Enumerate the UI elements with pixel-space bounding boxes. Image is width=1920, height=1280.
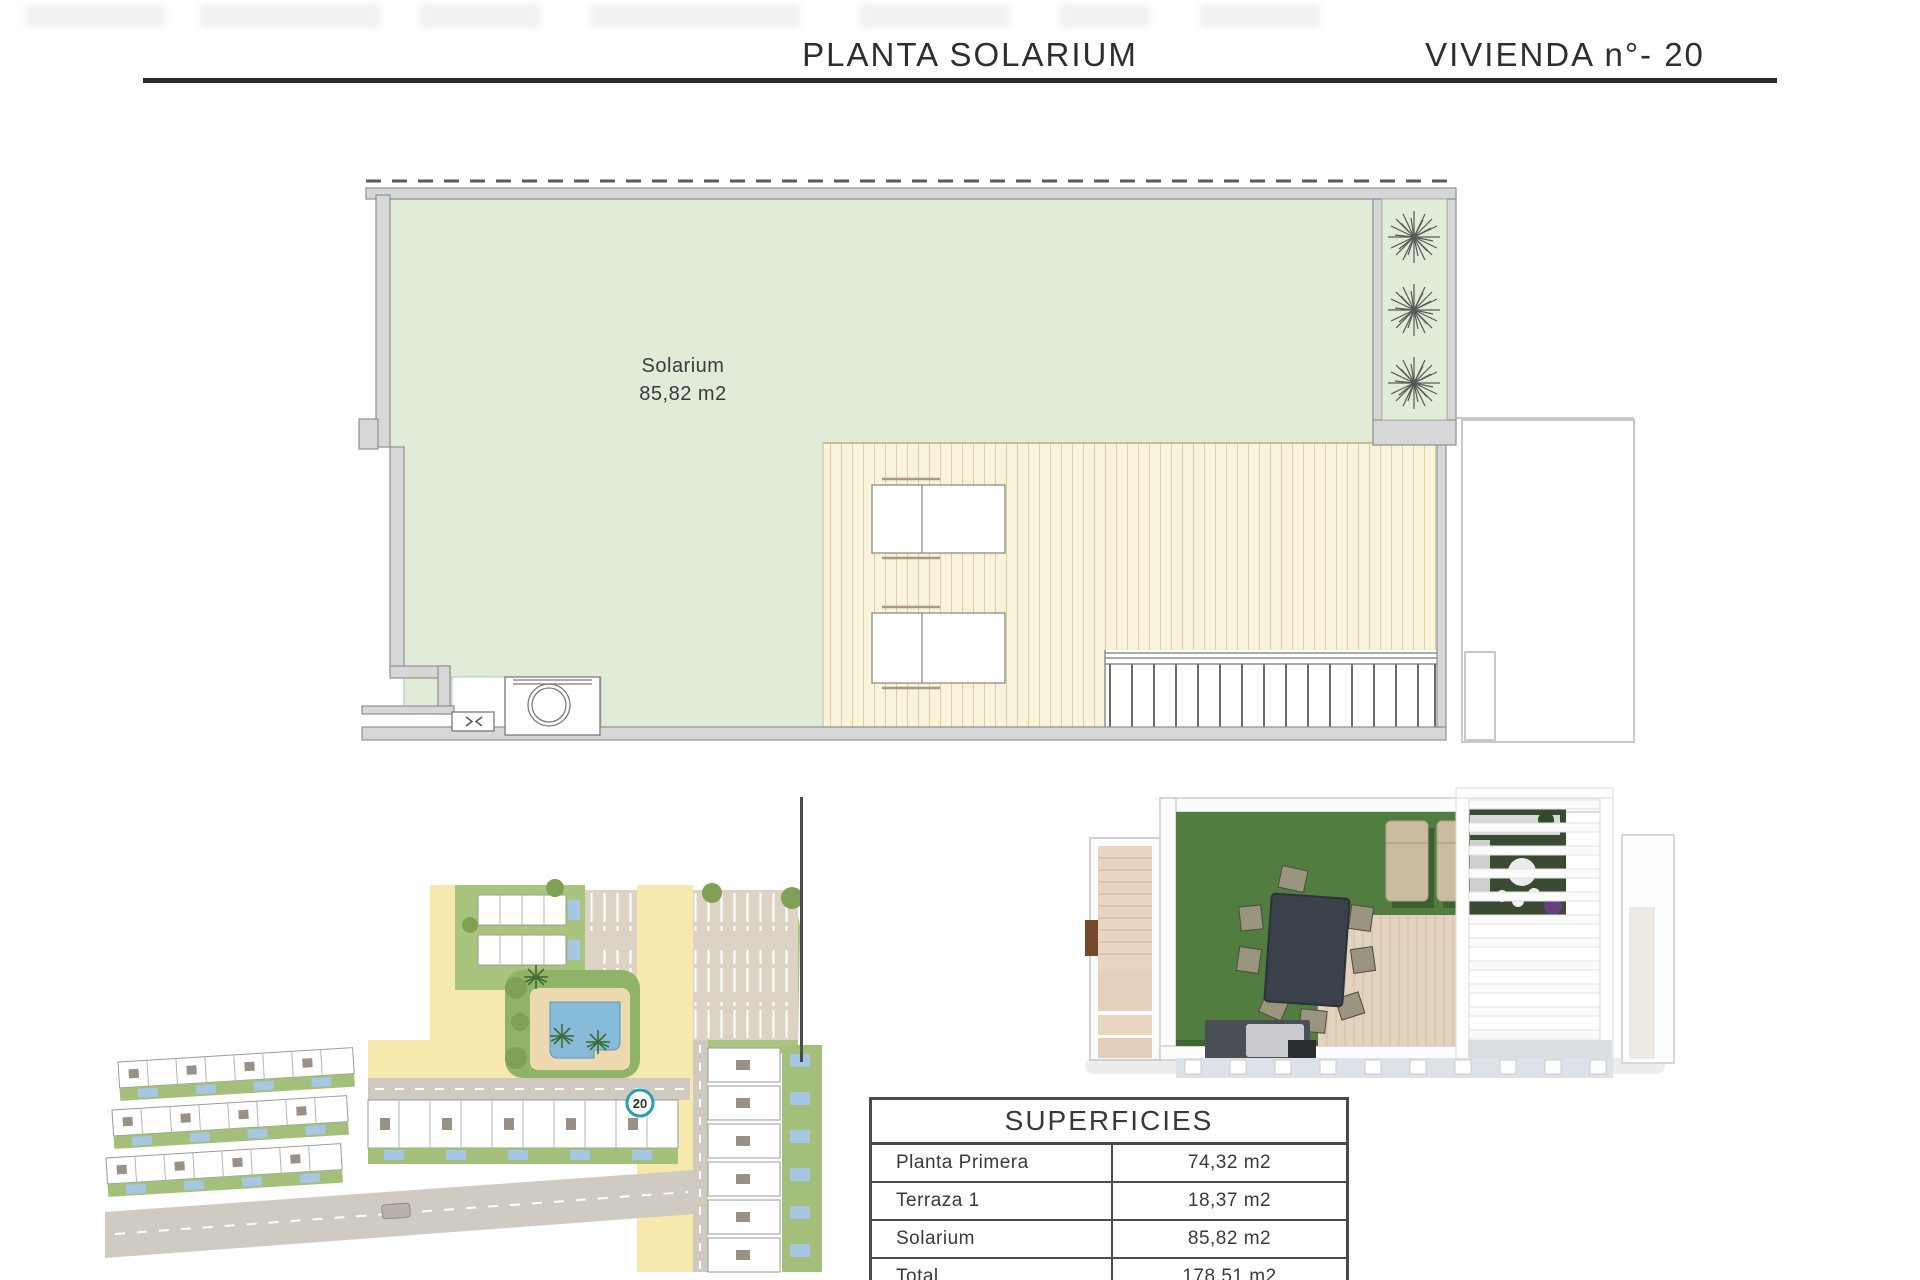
table-row: Total 178,51 m2 [872, 1259, 1346, 1280]
planter-left-wall [1373, 199, 1382, 445]
sun-lounger [872, 613, 1005, 683]
section-divider [800, 797, 803, 1062]
right-annex [1622, 835, 1674, 1063]
pergola [1456, 788, 1613, 1064]
stairs-railing [1105, 650, 1437, 727]
table-row: Solarium 85,82 m2 [872, 1221, 1346, 1259]
plan-sheet: PLANTA SOLARIUM VIVIENDA n°- 20 [0, 0, 1920, 1280]
left-house-cluster [106, 1048, 355, 1197]
tree-icon [702, 883, 722, 903]
solarium-floor-plan: Solarium 85,82 m2 [340, 165, 1670, 765]
washing-unit [505, 677, 600, 735]
stairs-annex [1085, 838, 1162, 1060]
table-row: Terraza 1 18,37 m2 [872, 1183, 1346, 1221]
deck-right-wall [1437, 443, 1446, 727]
planter [1382, 199, 1447, 420]
unit-20-badge: 20 [627, 1090, 653, 1116]
watermark-smudge [1060, 4, 1150, 28]
table-row: Planta Primera 74,32 m2 [872, 1145, 1346, 1183]
vent-unit [452, 712, 494, 731]
row-value: 18,37 m2 [1113, 1183, 1346, 1219]
pool [550, 1002, 620, 1058]
row-label: Solarium [872, 1221, 1113, 1257]
room-area-label: 85,82 m2 [639, 383, 726, 405]
watermark-smudge [25, 4, 165, 28]
left-wall-upper [376, 195, 390, 447]
row-label: Total [872, 1259, 1113, 1280]
header-rule [143, 78, 1777, 83]
tree-icon [546, 879, 564, 897]
watermark-smudge [200, 4, 380, 28]
planter-right-wall [1447, 199, 1456, 420]
room-label: Solarium [642, 355, 725, 377]
watermark-smudge [1200, 4, 1320, 28]
row-value: 74,32 m2 [1113, 1145, 1346, 1181]
tree-icon [462, 917, 478, 933]
left-wall-lower [390, 447, 404, 672]
superficies-table: SUPERFICIES Planta Primera 74,32 m2 Terr… [869, 1097, 1349, 1280]
page-title: PLANTA SOLARIUM [735, 34, 1205, 76]
left-wall-notch [359, 419, 378, 449]
planter-bottom-wall [1373, 420, 1456, 445]
row-value: 85,82 m2 [1113, 1221, 1346, 1257]
row-label: Planta Primera [872, 1145, 1113, 1181]
row-label: Terraza 1 [872, 1183, 1113, 1219]
door [1085, 920, 1098, 956]
right-house-column [693, 1040, 822, 1272]
pool-complex [505, 965, 640, 1078]
row-value: 178,51 m2 [1113, 1259, 1346, 1280]
sun-lounger [872, 485, 1005, 553]
car-icon [382, 1203, 411, 1219]
table-title: SUPERFICIES [872, 1100, 1346, 1145]
render-3d [1060, 780, 1760, 1100]
unit-number-title: VIVIENDA n°- 20 [1330, 34, 1800, 76]
watermark-smudge [590, 4, 800, 28]
top-wall [366, 188, 1456, 199]
unit-20-label: 20 [633, 1096, 647, 1111]
watermark-smudge [860, 4, 1010, 28]
neighbour-unit-outline [1456, 418, 1634, 742]
watermark-smudge [420, 4, 540, 28]
site-plan: 20 [100, 880, 840, 1280]
bbq-unit [1205, 1020, 1316, 1064]
dining-table [1264, 893, 1349, 1006]
